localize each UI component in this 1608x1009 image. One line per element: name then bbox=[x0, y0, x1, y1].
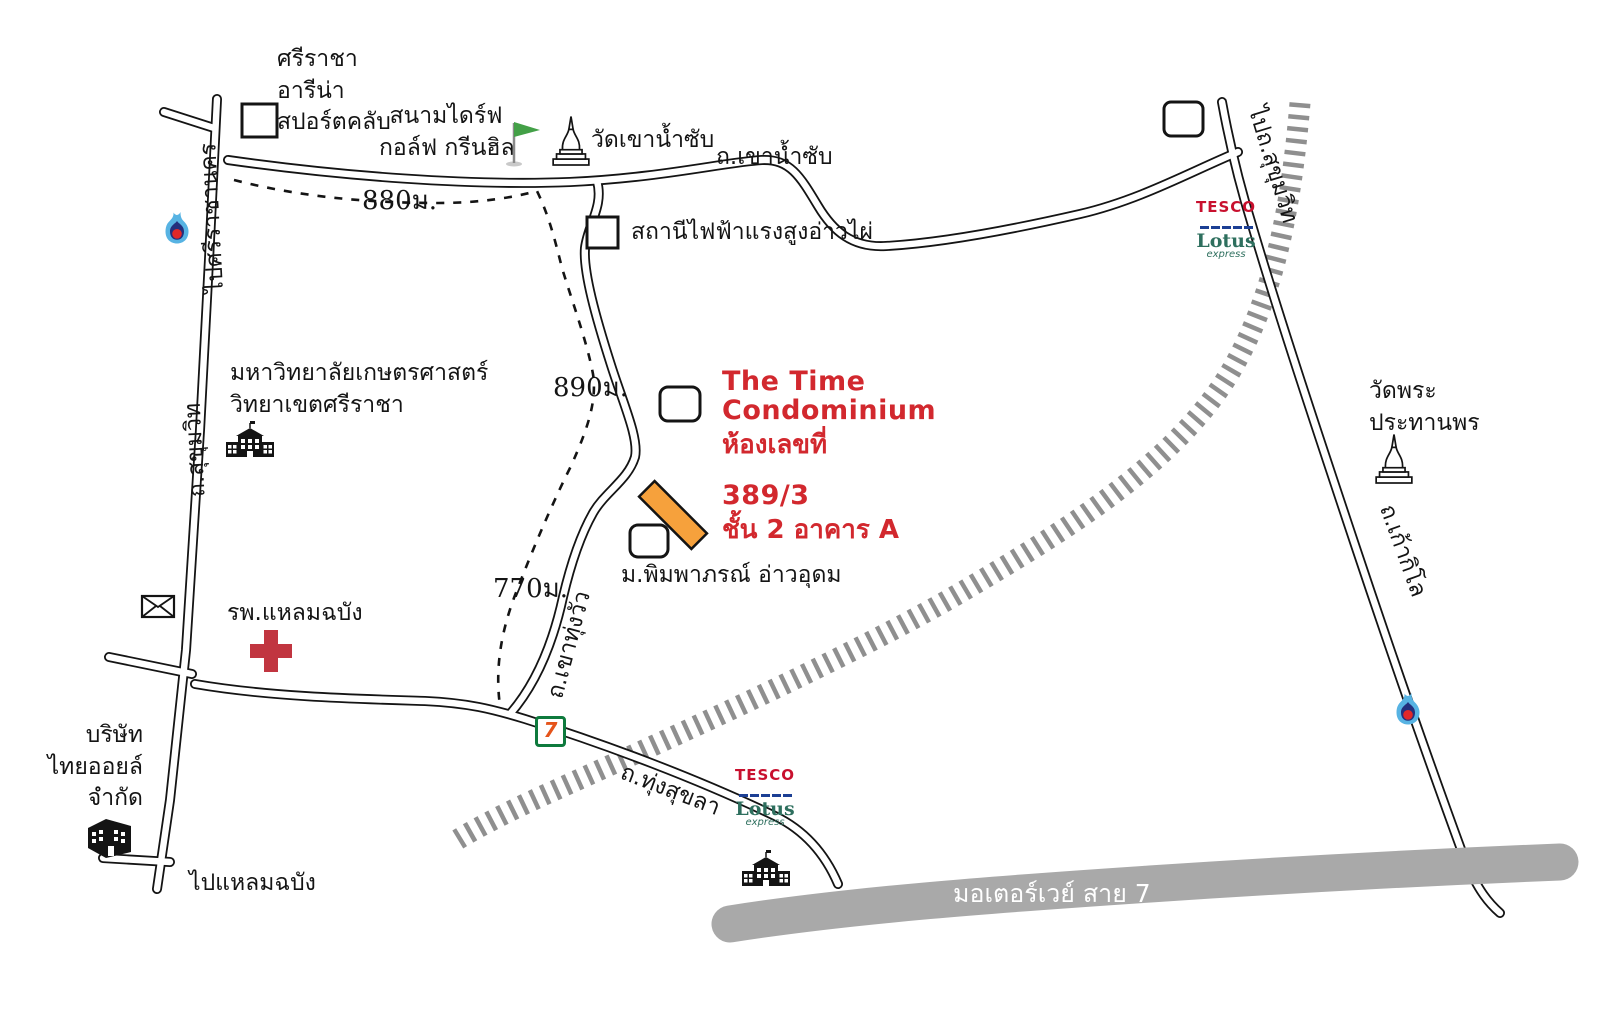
label-line: อารีน่า bbox=[277, 76, 391, 108]
label-line: ประทานพร bbox=[1369, 408, 1480, 440]
label-line: มหาวิทยาลัยเกษตรศาสตร์ bbox=[230, 358, 488, 390]
label-line: กอล์ฟ กรีนฮิล bbox=[379, 133, 513, 165]
label-kasetsart-university: มหาวิทยาลัยเกษตรศาสตร์ วิทยาเขตศรีราชา bbox=[230, 358, 488, 421]
label-distance-770m: 770ม. bbox=[493, 572, 568, 608]
tesco-lotus-logo-south: TESCO Lotus express bbox=[728, 768, 802, 828]
school-building-icon bbox=[742, 850, 790, 886]
label-thaioil-company: บริษัท ไทยออยล์ จำกัด bbox=[35, 720, 143, 815]
fuel-station-icon-right bbox=[1397, 693, 1420, 725]
label-line: ศรีราชา bbox=[277, 44, 391, 76]
seven-eleven-icon: 7 bbox=[535, 716, 566, 747]
label-line: บริษัท bbox=[35, 720, 143, 752]
label-wat-khao-namsap: วัดเขาน้ำซับ bbox=[591, 125, 714, 157]
label-golf-driving-range: สนามไดร์ฟ กอล์ฟ กรีนฮิล bbox=[379, 101, 513, 164]
label-distance-880m: 880ม. bbox=[362, 184, 437, 220]
map-figure: ศรีราชา อารีน่า สปอร์ตคลับ สนามไดร์ฟ กอล… bbox=[0, 0, 1608, 1009]
label-to-laem-chabang: ไปแหลมฉบัง bbox=[189, 868, 316, 900]
hospital-cross-icon bbox=[250, 630, 292, 672]
sportclub-marker bbox=[242, 104, 277, 137]
post-office-icon bbox=[142, 596, 174, 617]
building-marker-topright bbox=[1164, 102, 1203, 136]
label-distance-890m: 890ม. bbox=[553, 371, 628, 407]
destination-title-line2: Condominium bbox=[722, 392, 936, 429]
seven-glyph: 7 bbox=[538, 719, 563, 741]
label-sriracha-arena: ศรีราชา อารีน่า สปอร์ตคลับ bbox=[277, 44, 391, 139]
tesco-lotus-logo-north: TESCO Lotus express bbox=[1189, 200, 1263, 260]
label-line: วิทยาเขตศรีราชา bbox=[230, 390, 488, 422]
building-marker-condo-north bbox=[660, 387, 700, 421]
label-line: สนามไดร์ฟ bbox=[379, 101, 513, 133]
label-line: วัดพระ bbox=[1369, 376, 1480, 408]
label-road-sukhumvit: ถ.สุขุมวิท bbox=[178, 402, 215, 498]
label-line: สปอร์ตคลับ bbox=[277, 107, 391, 139]
temple-stupa-icon-khao-namsap bbox=[553, 117, 589, 165]
label-motorway-7: มอเตอร์เวย์ สาย 7 bbox=[953, 877, 1151, 912]
destination-floor-building: ชั้น 2 อาคาร A bbox=[722, 513, 899, 549]
tesco-wordmark: TESCO bbox=[728, 768, 802, 783]
railway-track bbox=[457, 103, 1300, 840]
university-building-icon bbox=[226, 421, 274, 457]
temple-stupa-icon-wat-phra bbox=[1376, 435, 1412, 483]
label-road-khao-namsap: ถ.เขาน้ำซับ bbox=[716, 142, 833, 174]
building-marker-condo-south bbox=[630, 525, 668, 557]
tesco-wordmark: TESCO bbox=[1189, 200, 1263, 215]
label-power-station: สถานีไฟฟ้าแรงสูงอ่าวไผ่ bbox=[631, 217, 873, 249]
label-laem-chabang-hospital: รพ.แหลมฉบัง bbox=[227, 598, 363, 630]
label-pimpaporn-village: ม.พิมพาภรณ์ อ่าวอุดม bbox=[621, 560, 842, 592]
label-wat-phra-prathanporn: วัดพระ ประทานพร bbox=[1369, 376, 1480, 439]
destination-room-number: 389/3 bbox=[722, 477, 810, 514]
fuel-station-icon-left bbox=[166, 212, 189, 244]
destination-room-label: ห้องเลขที่ bbox=[722, 428, 827, 464]
label-line: ไทยออยล์ bbox=[35, 752, 143, 784]
label-line: จำกัด bbox=[35, 783, 143, 815]
power-station-marker bbox=[587, 217, 618, 248]
thaioil-building-icon bbox=[88, 819, 131, 858]
